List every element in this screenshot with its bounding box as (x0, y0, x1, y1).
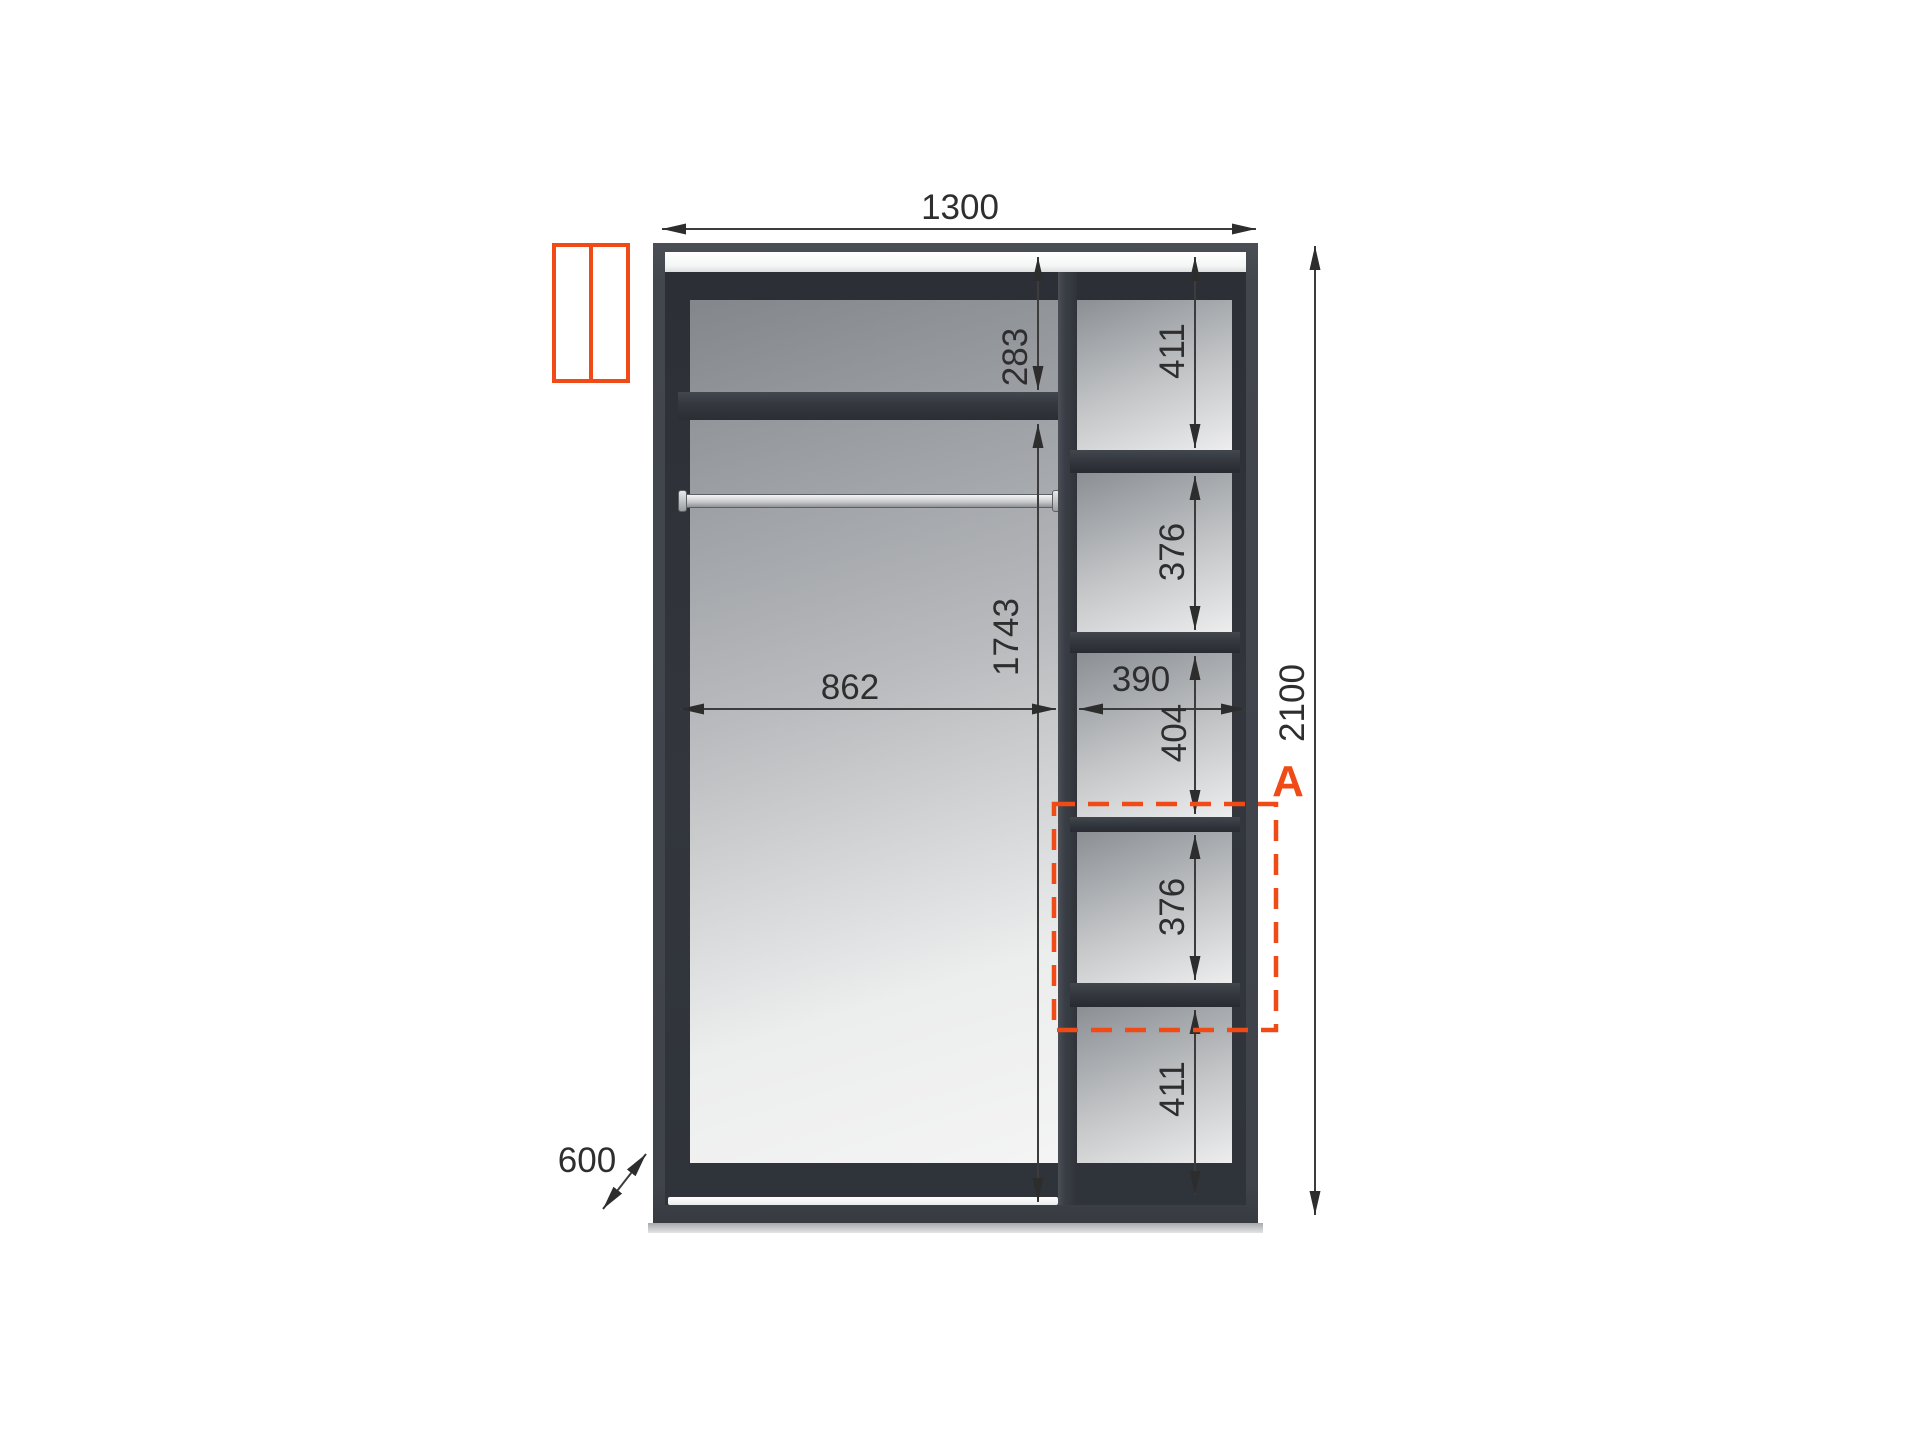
dim-label-411-bottom: 411 (1155, 1034, 1191, 1144)
wardrobe-dimension-diagram: 1300 2100 283 1743 862 390 404 411 376 3… (0, 0, 1920, 1440)
section-a-marker: A (1262, 758, 1314, 806)
dim-label-376-fourth: 376 (1155, 852, 1191, 962)
dim-label-width: 1300 (890, 190, 1030, 226)
dim-label-1743: 1743 (989, 567, 1025, 707)
dim-label-283: 283 (998, 302, 1034, 412)
dim-label-404: 404 (1157, 678, 1193, 788)
dim-label-376-second: 376 (1155, 497, 1191, 607)
dim-label-411-top: 411 (1155, 296, 1191, 406)
dim-label-height: 2100 (1275, 633, 1311, 773)
dim-label-862: 862 (780, 670, 920, 706)
dim-label-depth: 600 (532, 1143, 642, 1179)
